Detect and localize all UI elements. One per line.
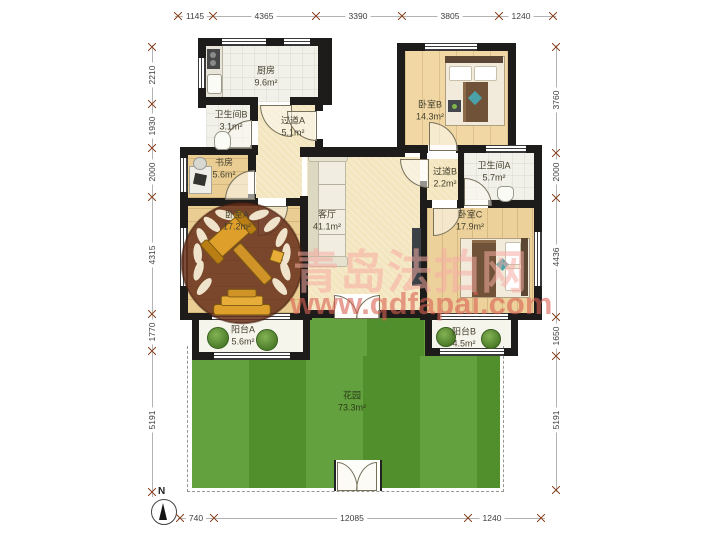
headboard-icon (445, 56, 503, 63)
garden-boundary (503, 346, 504, 492)
dimension-value: 4436 (551, 245, 561, 270)
dimension-value: 740 (186, 513, 206, 523)
wall (488, 200, 542, 208)
dimension-tick (148, 347, 156, 355)
window (486, 145, 526, 153)
dimension-value: 2210 (147, 63, 157, 88)
dimension-value: 1770 (147, 320, 157, 345)
dimension-value: 2000 (551, 160, 561, 185)
dimension-tick (148, 193, 156, 201)
nightstand-icon (448, 100, 461, 112)
dimension-tick (552, 352, 560, 360)
dimension-tick (552, 313, 560, 321)
dimension-tick (209, 12, 217, 20)
watermark-url: www.qdfapai.com (290, 286, 552, 322)
dimension-value: 1650 (551, 324, 561, 349)
plant-icon (481, 329, 501, 349)
dimension-tick (148, 310, 156, 318)
dimension-value: 1240 (480, 513, 505, 523)
dimension-value: 1930 (147, 114, 157, 139)
dimension-tick (176, 514, 184, 522)
chair-icon (193, 157, 207, 170)
room-label-bedroom-a: 卧室A17.2m² (223, 209, 251, 232)
compass-north-label: N (158, 486, 165, 497)
garden-boundary (187, 491, 504, 492)
dimension-tick (552, 149, 560, 157)
room-label-hallway-b: 过道B2.2m² (433, 166, 457, 189)
burner-icon (210, 60, 216, 66)
dimension-tick (174, 12, 182, 20)
window (284, 38, 310, 46)
wall (318, 38, 332, 105)
dimension-tick (148, 43, 156, 51)
wall (315, 97, 323, 111)
window (214, 352, 290, 360)
room-label-bathroom-a: 卫生间A5.7m² (477, 160, 510, 183)
toilet-icon (497, 186, 514, 202)
dimension-tick (552, 486, 560, 494)
window (180, 158, 188, 192)
dimension-value: 5191 (147, 408, 157, 433)
toilet-icon (214, 131, 231, 150)
plant-dot-icon (452, 104, 457, 109)
dimension-tick (549, 12, 557, 20)
room-label-bedroom-c: 卧室C17.9m² (456, 209, 484, 232)
dimension-value: 12085 (337, 513, 367, 523)
wall (308, 147, 405, 157)
window (534, 232, 542, 286)
plant-icon (207, 327, 229, 349)
garden-grass (310, 318, 425, 360)
room-label-hallway-a: 过道A5.1m² (281, 115, 305, 138)
desk-icon (189, 166, 212, 194)
burner-icon (210, 52, 216, 58)
room-label-garden: 花园73.3m² (338, 390, 366, 413)
room-label-living-room: 客厅41.1m² (313, 209, 341, 232)
sink-icon (207, 74, 222, 94)
dimension-tick (312, 12, 320, 20)
pillow-icon (474, 66, 497, 81)
dimension-value: 4315 (147, 243, 157, 268)
room-label-bathroom-b: 卫生间B3.1m² (214, 109, 247, 132)
garden-boundary (187, 346, 188, 492)
window (222, 38, 266, 46)
compass-needle-icon (159, 503, 167, 520)
dimension-tick (398, 12, 406, 20)
room-label-balcony-b: 阳台B4.5m² (452, 326, 476, 349)
stove-icon (207, 49, 220, 69)
dimension-value: 4365 (252, 11, 277, 21)
room-label-balcony-a: 阳台A5.6m² (231, 324, 255, 347)
room-label-bedroom-b: 卧室B14.3m² (416, 99, 444, 122)
pillow-icon (449, 66, 472, 81)
dimension-value: 3390 (346, 11, 371, 21)
dimension-tick (537, 514, 545, 522)
dimension-value: 5191 (551, 408, 561, 433)
room-label-kitchen: 厨房9.6m² (254, 65, 277, 88)
window (198, 58, 206, 88)
dimension-value: 3760 (551, 88, 561, 113)
wall (508, 43, 516, 153)
dimension-tick (552, 194, 560, 202)
dimension-tick (148, 100, 156, 108)
wall (457, 200, 464, 208)
wall (397, 43, 405, 155)
dimension-value: 3805 (438, 11, 463, 21)
hallway-a-floor (256, 150, 302, 198)
laptop-icon (193, 173, 207, 186)
wall (397, 145, 428, 153)
plant-icon (256, 329, 278, 351)
dimension-value: 1145 (183, 11, 207, 21)
wall (300, 147, 308, 157)
dimension-tick (148, 144, 156, 152)
wall (198, 97, 258, 105)
dimension-tick (552, 43, 560, 51)
dimension-value: 2000 (147, 160, 157, 185)
floor-plan: 厨房9.6m² 卫生间B3.1m² 过道A5.1m² 书房5.6m² 卧室A17… (0, 0, 710, 533)
dimension-tick (210, 514, 218, 522)
dimension-value: 1240 (509, 11, 534, 21)
room-label-study: 书房5.6m² (212, 157, 235, 180)
dimension-tick (495, 12, 503, 20)
wall (250, 97, 258, 121)
dimension-tick (464, 514, 472, 522)
dimension-tick (148, 488, 156, 496)
window (425, 43, 477, 51)
